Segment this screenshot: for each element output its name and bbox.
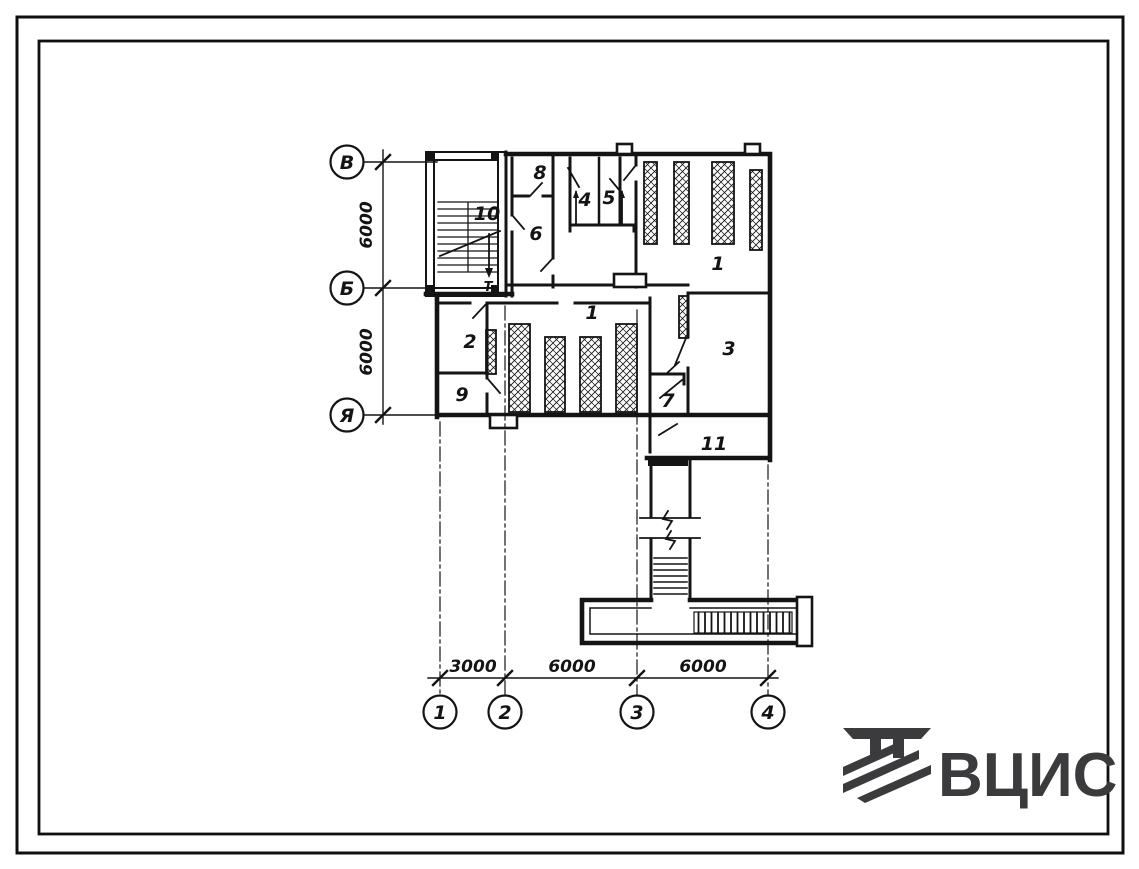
axis-label-col-3: 3 — [630, 702, 643, 724]
axis-label-col-4: 4 — [760, 702, 774, 724]
vcis-logo: ВЦИС — [843, 728, 1117, 810]
dim-bottom-1-2: 3000 — [449, 657, 496, 677]
dim-bottom-3-4: 6000 — [679, 657, 726, 677]
room-label-1-upper: 1 — [711, 253, 724, 275]
axis-label-row-v: В — [340, 152, 354, 174]
vcis-logo-text: ВЦИС — [938, 741, 1117, 810]
room-label-3: 3 — [722, 338, 735, 360]
dim-left-upper: 6000 — [357, 201, 377, 248]
room-label-7: 7 — [661, 390, 675, 412]
gallery-ramp-hatch — [694, 612, 792, 633]
room-label-10: 10 — [474, 203, 500, 225]
door-threshold — [648, 458, 688, 466]
room-label-11: 11 — [701, 433, 727, 455]
outer-frame — [17, 17, 1123, 853]
walkway-stair-treads — [654, 558, 687, 594]
plan-graphics — [331, 144, 813, 729]
room-label-6: 6 — [529, 223, 542, 245]
vcis-logo-icon — [843, 728, 931, 803]
room-label-1-lower: 1 — [585, 302, 598, 324]
dim-left-lower: 6000 — [357, 328, 377, 375]
stair-direction-mark: Т — [484, 280, 494, 295]
room-label-8: 8 — [533, 162, 546, 184]
axis-label-col-2: 2 — [498, 702, 511, 724]
room-label-5: 5 — [602, 187, 615, 209]
dim-bottom-2-3: 6000 — [548, 657, 595, 677]
axis-label-row-b: Б — [340, 278, 354, 300]
room-label-9: 9 — [455, 384, 468, 406]
floor-plan-drawing: В Б Я 1 2 3 4 6000 6000 3000 6000 6000 1… — [0, 0, 1139, 869]
room-label-4: 4 — [577, 189, 591, 211]
drawing-sheet: В Б Я 1 2 3 4 6000 6000 3000 6000 6000 1… — [0, 0, 1139, 869]
inner-frame — [39, 41, 1108, 834]
axis-label-row-ya: Я — [339, 405, 355, 427]
axis-label-col-1: 1 — [433, 702, 446, 724]
room-label-2: 2 — [463, 331, 476, 353]
